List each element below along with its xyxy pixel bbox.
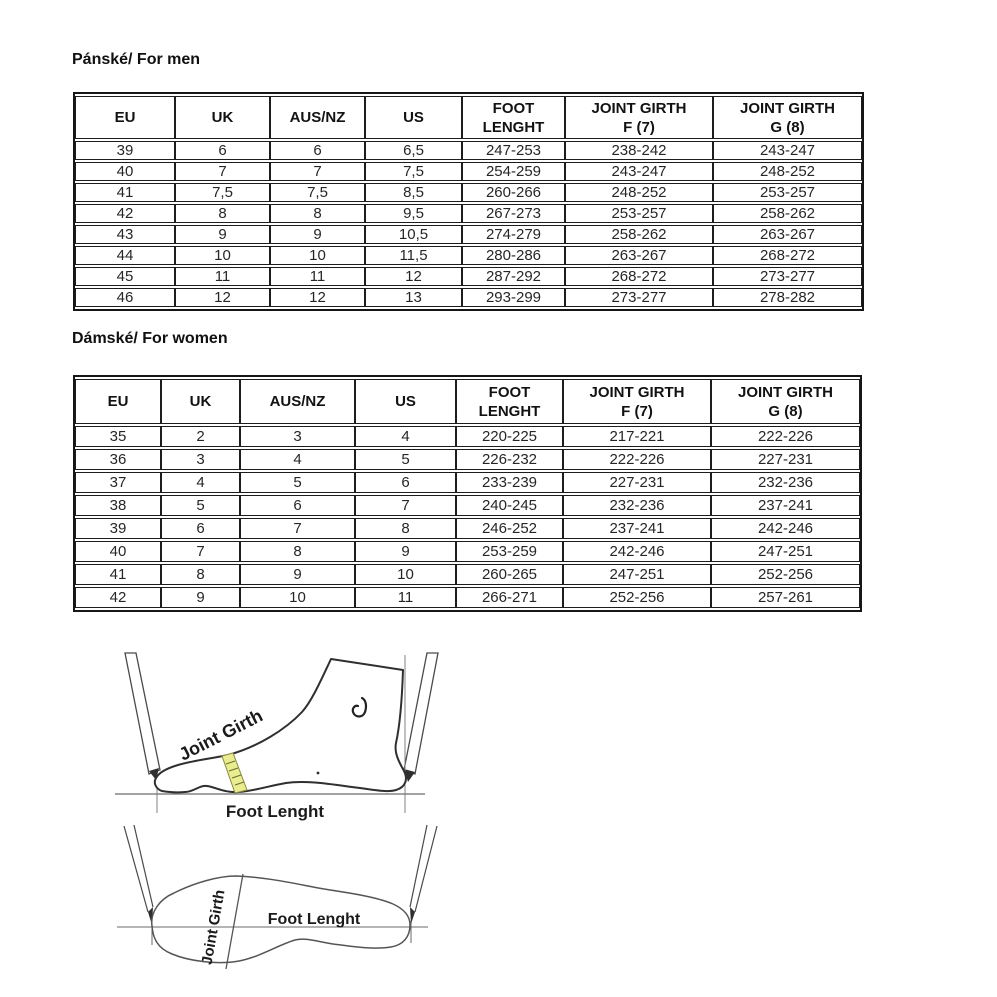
table-cell: 8 bbox=[161, 564, 240, 585]
table-cell: 7 bbox=[270, 162, 365, 181]
table-cell: 232-236 bbox=[711, 472, 860, 493]
table-cell: 41 bbox=[75, 564, 161, 585]
table-cell: 41 bbox=[75, 183, 175, 202]
table-row: 37456233-239227-231232-236 bbox=[75, 472, 860, 493]
table-cell: 253-257 bbox=[565, 204, 713, 223]
table-cell: 260-265 bbox=[456, 564, 563, 585]
column-header-joint-girth-f: JOINT GIRTHF (7) bbox=[563, 379, 711, 424]
column-header-uk: UK bbox=[161, 379, 240, 424]
table-cell: 4 bbox=[240, 449, 355, 470]
table-cell: 233-239 bbox=[456, 472, 563, 493]
table-cell: 222-226 bbox=[711, 426, 860, 447]
table-cell: 227-231 bbox=[711, 449, 860, 470]
table-cell: 263-267 bbox=[713, 225, 862, 244]
table-cell: 9 bbox=[355, 541, 456, 562]
table-cell: 44 bbox=[75, 246, 175, 265]
table-cell: 242-246 bbox=[711, 518, 860, 539]
table-cell: 274-279 bbox=[462, 225, 565, 244]
joint-girth-line bbox=[226, 874, 243, 969]
side-view-diagram: Joint Girth Foot Lenght bbox=[115, 653, 438, 821]
left-pencil bbox=[124, 825, 153, 925]
table-row: 44101011,5280-286263-267268-272 bbox=[75, 246, 862, 265]
table-row: 417,57,58,5260-266248-252253-257 bbox=[75, 183, 862, 202]
table-cell: 3 bbox=[240, 426, 355, 447]
table-cell: 10,5 bbox=[365, 225, 462, 244]
table-cell: 9 bbox=[240, 564, 355, 585]
table-cell: 38 bbox=[75, 495, 161, 516]
column-header-foot-length: FOOTLENGHT bbox=[456, 379, 563, 424]
table-cell: 278-282 bbox=[713, 288, 862, 307]
table-row: 46121213293-299273-277278-282 bbox=[75, 288, 862, 307]
column-header-joint-girth-f: JOINT GIRTHF (7) bbox=[565, 96, 713, 139]
left-caliper-stick bbox=[125, 653, 160, 774]
column-header-uk: UK bbox=[175, 96, 270, 139]
table-cell: 40 bbox=[75, 162, 175, 181]
table-cell: 252-256 bbox=[711, 564, 860, 585]
table-cell: 263-267 bbox=[565, 246, 713, 265]
table-row: 40777,5254-259243-247248-252 bbox=[75, 162, 862, 181]
table-cell: 226-232 bbox=[456, 449, 563, 470]
table-cell: 238-242 bbox=[565, 141, 713, 160]
column-header-ausnz: AUS/NZ bbox=[240, 379, 355, 424]
table-cell: 266-271 bbox=[456, 587, 563, 608]
table-cell: 273-277 bbox=[565, 288, 713, 307]
right-caliper-stick bbox=[404, 653, 438, 774]
table-cell: 273-277 bbox=[713, 267, 862, 286]
table-cell: 267-273 bbox=[462, 204, 565, 223]
table-cell: 258-262 bbox=[713, 204, 862, 223]
table-row: 39678246-252237-241242-246 bbox=[75, 518, 860, 539]
table-cell: 5 bbox=[355, 449, 456, 470]
table-cell: 257-261 bbox=[711, 587, 860, 608]
column-header-us: US bbox=[365, 96, 462, 139]
table-cell: 12 bbox=[270, 288, 365, 307]
table-cell: 247-251 bbox=[711, 541, 860, 562]
table-cell: 6 bbox=[175, 141, 270, 160]
table-cell: 7 bbox=[240, 518, 355, 539]
table-cell: 4 bbox=[161, 472, 240, 493]
table-cell: 46 bbox=[75, 288, 175, 307]
side-foot-length-label: Foot Lenght bbox=[226, 802, 325, 821]
table-row: 35234220-225217-221222-226 bbox=[75, 426, 860, 447]
table-cell: 237-241 bbox=[563, 518, 711, 539]
table-cell: 252-256 bbox=[563, 587, 711, 608]
table-cell: 268-272 bbox=[565, 267, 713, 286]
table-cell: 36 bbox=[75, 449, 161, 470]
table-cell: 248-252 bbox=[565, 183, 713, 202]
table-cell: 11 bbox=[270, 267, 365, 286]
top-foot-length-label: Foot Lenght bbox=[268, 911, 361, 928]
table-cell: 4 bbox=[355, 426, 456, 447]
table-cell: 7 bbox=[175, 162, 270, 181]
table-cell: 35 bbox=[75, 426, 161, 447]
table-cell: 242-246 bbox=[563, 541, 711, 562]
table-cell: 7 bbox=[161, 541, 240, 562]
table-cell: 246-252 bbox=[456, 518, 563, 539]
foot-measurement-diagrams: Joint Girth Foot Lenght Joint Girth Foot… bbox=[90, 640, 480, 985]
table-cell: 240-245 bbox=[456, 495, 563, 516]
table-cell: 9 bbox=[270, 225, 365, 244]
table-cell: 247-253 bbox=[462, 141, 565, 160]
table-cell: 287-292 bbox=[462, 267, 565, 286]
foot-diagrams-svg: Joint Girth Foot Lenght Joint Girth Foot… bbox=[90, 640, 480, 985]
table-cell: 13 bbox=[365, 288, 462, 307]
column-header-ausnz: AUS/NZ bbox=[270, 96, 365, 139]
table-cell: 42 bbox=[75, 204, 175, 223]
men-section-title: Pánské/ For men bbox=[72, 51, 200, 69]
table-cell: 8 bbox=[355, 518, 456, 539]
column-header-foot-length: FOOTLENGHT bbox=[462, 96, 565, 139]
table-row: 36345226-232222-226227-231 bbox=[75, 449, 860, 470]
table-cell: 10 bbox=[270, 246, 365, 265]
table-cell: 220-225 bbox=[456, 426, 563, 447]
table-cell: 253-259 bbox=[456, 541, 563, 562]
table-cell: 39 bbox=[75, 141, 175, 160]
table-cell: 6,5 bbox=[365, 141, 462, 160]
table-cell: 248-252 bbox=[713, 162, 862, 181]
column-header-us: US bbox=[355, 379, 456, 424]
table-cell: 11 bbox=[355, 587, 456, 608]
table-cell: 280-286 bbox=[462, 246, 565, 265]
table-row: 45111112287-292268-272273-277 bbox=[75, 267, 862, 286]
table-row: 38567240-245232-236237-241 bbox=[75, 495, 860, 516]
table-cell: 9 bbox=[175, 225, 270, 244]
table-cell: 40 bbox=[75, 541, 161, 562]
men-size-table: EU UK AUS/NZ US FOOTLENGHT JOINT GIRTHF … bbox=[73, 92, 864, 311]
table-cell: 6 bbox=[161, 518, 240, 539]
table-cell: 3 bbox=[161, 449, 240, 470]
table-cell: 254-259 bbox=[462, 162, 565, 181]
column-header-joint-girth-g: JOINT GIRTHG (8) bbox=[713, 96, 862, 139]
table-cell: 8 bbox=[175, 204, 270, 223]
table-cell: 6 bbox=[355, 472, 456, 493]
column-header-joint-girth-g: JOINT GIRTHG (8) bbox=[711, 379, 860, 424]
table-cell: 253-257 bbox=[713, 183, 862, 202]
table-row: 439910,5274-279258-262263-267 bbox=[75, 225, 862, 244]
table-cell: 232-236 bbox=[563, 495, 711, 516]
table-cell: 42 bbox=[75, 587, 161, 608]
table-cell: 6 bbox=[240, 495, 355, 516]
table-cell: 237-241 bbox=[711, 495, 860, 516]
table-row: 40789253-259242-246247-251 bbox=[75, 541, 860, 562]
table-cell: 8,5 bbox=[365, 183, 462, 202]
table-cell: 10 bbox=[240, 587, 355, 608]
table-cell: 12 bbox=[175, 288, 270, 307]
table-cell: 37 bbox=[75, 472, 161, 493]
table-row: 39666,5247-253238-242243-247 bbox=[75, 141, 862, 160]
top-view-diagram: Joint Girth Foot Lenght bbox=[117, 825, 437, 969]
table-cell: 8 bbox=[240, 541, 355, 562]
table-cell: 243-247 bbox=[713, 141, 862, 160]
table-cell: 258-262 bbox=[565, 225, 713, 244]
table-cell: 5 bbox=[240, 472, 355, 493]
table-row: 4291011266-271252-256257-261 bbox=[75, 587, 860, 608]
table-cell: 7 bbox=[355, 495, 456, 516]
women-size-table: EU UK AUS/NZ US FOOTLENGHT JOINT GIRTHF … bbox=[73, 375, 862, 612]
table-cell: 39 bbox=[75, 518, 161, 539]
column-header-eu: EU bbox=[75, 379, 161, 424]
table-cell: 6 bbox=[270, 141, 365, 160]
table-cell: 243-247 bbox=[565, 162, 713, 181]
table-cell: 11 bbox=[175, 267, 270, 286]
table-cell: 217-221 bbox=[563, 426, 711, 447]
table-cell: 2 bbox=[161, 426, 240, 447]
table-cell: 222-226 bbox=[563, 449, 711, 470]
table-cell: 9,5 bbox=[365, 204, 462, 223]
table-cell: 10 bbox=[175, 246, 270, 265]
table-row: 42889,5267-273253-257258-262 bbox=[75, 204, 862, 223]
table-cell: 227-231 bbox=[563, 472, 711, 493]
table-cell: 43 bbox=[75, 225, 175, 244]
foot-side-outline bbox=[155, 659, 406, 792]
right-pencil bbox=[410, 825, 437, 924]
table-cell: 11,5 bbox=[365, 246, 462, 265]
table-cell: 7,5 bbox=[270, 183, 365, 202]
table-header-row: EU UK AUS/NZ US FOOTLENGHT JOINT GIRTHF … bbox=[75, 96, 862, 139]
table-cell: 260-266 bbox=[462, 183, 565, 202]
table-cell: 10 bbox=[355, 564, 456, 585]
column-header-eu: EU bbox=[75, 96, 175, 139]
table-row: 418910260-265247-251252-256 bbox=[75, 564, 860, 585]
table-cell: 268-272 bbox=[713, 246, 862, 265]
table-cell: 293-299 bbox=[462, 288, 565, 307]
table-cell: 247-251 bbox=[563, 564, 711, 585]
table-header-row: EU UK AUS/NZ US FOOTLENGHT JOINT GIRTHF … bbox=[75, 379, 860, 424]
women-section-title: Dámské/ For women bbox=[72, 330, 228, 348]
table-cell: 5 bbox=[161, 495, 240, 516]
table-cell: 9 bbox=[161, 587, 240, 608]
table-cell: 7,5 bbox=[365, 162, 462, 181]
table-cell: 8 bbox=[270, 204, 365, 223]
table-cell: 7,5 bbox=[175, 183, 270, 202]
artifact-dot bbox=[317, 772, 320, 775]
table-cell: 45 bbox=[75, 267, 175, 286]
table-cell: 12 bbox=[365, 267, 462, 286]
